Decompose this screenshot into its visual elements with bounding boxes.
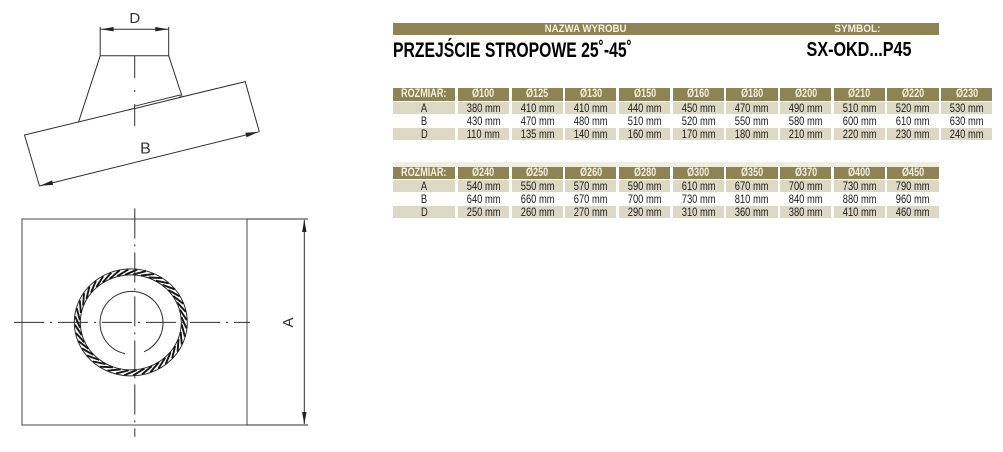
svg-text:B: B (140, 141, 151, 158)
svg-text:D: D (129, 10, 140, 27)
svg-text:A: A (280, 317, 297, 327)
